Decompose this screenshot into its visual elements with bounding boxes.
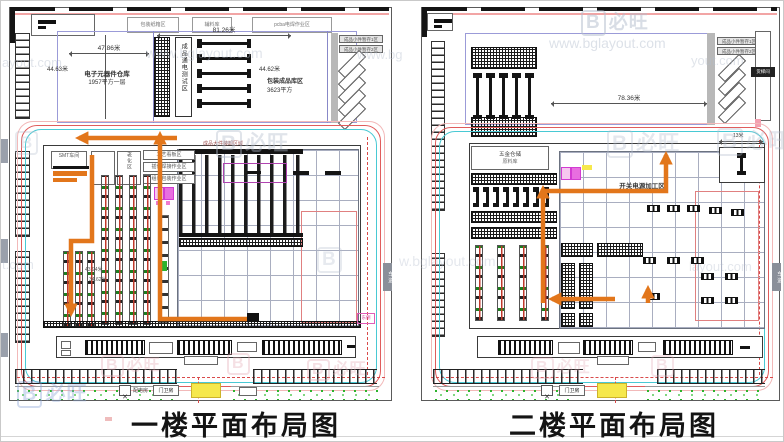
dimension-label: 78.36米 [597, 95, 661, 103]
floor1-plan: 包装纸箱区 辅料库 pcba电焊作业区 81.26米 47.86米 44.63米… [7, 5, 393, 403]
window-hatch [663, 340, 733, 355]
yellow-marker [582, 165, 592, 170]
buffer-rack-band [179, 238, 303, 247]
dimension-label: 81.26米 [192, 27, 256, 35]
pallet-rack [561, 243, 593, 257]
room-label: 老化区 [126, 152, 133, 170]
annex-room [61, 350, 71, 356]
parking-comb [657, 369, 765, 384]
workshop-red-zone [301, 211, 357, 323]
table-glyph [247, 171, 261, 174]
dimension-label: 47.86米 [77, 45, 141, 53]
annex-porch [597, 356, 629, 365]
workbench [647, 205, 660, 212]
lane-badge: 车道 [772, 263, 781, 291]
assembly-machine [197, 39, 251, 48]
metal-store-box: 五金仓储 原料库 [471, 146, 549, 170]
production-line-rail [75, 251, 83, 327]
dimension-line [719, 141, 763, 142]
production-line-rail [475, 245, 483, 321]
workbench [691, 257, 704, 264]
room-label: 五金仓储 [472, 150, 548, 158]
floor1-caption: 一楼平面布局图 [91, 404, 381, 442]
green-flow-marker [161, 261, 167, 271]
annex-room [237, 342, 257, 352]
lift-badge: 货梯间 [751, 67, 775, 77]
room-label: 包装成品库区 [267, 79, 303, 86]
pallet-rack [471, 227, 557, 239]
window-hatch [262, 340, 342, 355]
floor2-top-wall [423, 7, 777, 11]
hall-divider [327, 31, 328, 123]
press-machine [499, 73, 508, 119]
annex-porch [184, 356, 218, 365]
production-line-rail [115, 175, 123, 325]
orange-equipment-bar [53, 171, 87, 176]
production-line-rail [87, 251, 95, 327]
rack-column [579, 313, 593, 327]
main-gate [191, 383, 221, 398]
kanban-marker [154, 187, 164, 200]
press-machine [512, 73, 521, 119]
workbench [701, 297, 714, 304]
floor2-caption: 二楼平面布局图 [469, 404, 759, 442]
room-label: 成品通电测试区 [179, 43, 186, 92]
table-glyph [293, 171, 309, 175]
pallet-rack [597, 243, 643, 257]
pink-dot [166, 201, 170, 205]
gate-kiosk [239, 387, 257, 396]
dimension-line [157, 35, 291, 36]
rack-column [561, 263, 575, 309]
edge-badge [1, 139, 8, 163]
press-machine [473, 73, 482, 119]
table-glyph [740, 346, 750, 349]
pallet-rack [154, 37, 170, 117]
floor2-plan: 78.36米 成品小件暂存1区 成品小件暂存2区 货梯间 五金仓储 原料库 [419, 5, 781, 403]
window-hatch [498, 340, 553, 355]
production-line-rail [101, 175, 109, 325]
small-machine [533, 187, 539, 207]
dimension-label: 44.62米 [259, 67, 280, 74]
kanban-marker [561, 167, 571, 180]
stacked-label-box: 工艺看板区 [143, 150, 195, 160]
production-line-rail [143, 175, 151, 325]
assembly-machine [197, 69, 251, 78]
small-machine [473, 187, 479, 207]
workbench [731, 209, 744, 216]
edge-badge [1, 239, 8, 263]
room-label: 1957平方一层 [63, 80, 151, 87]
workbench [667, 257, 680, 264]
side-note-box: 东侧 [357, 313, 375, 324]
kanban-marker [571, 167, 581, 180]
crossed-box-icon [541, 385, 553, 396]
workbench [701, 273, 714, 280]
production-line-rail [129, 175, 137, 325]
window-hatch [85, 340, 145, 355]
workbench [643, 257, 656, 264]
production-line-rail [497, 245, 505, 321]
landscape-strip [433, 386, 577, 400]
assembly-machine [197, 99, 251, 108]
rack-column [579, 263, 593, 309]
corner-machine [737, 153, 746, 175]
annex-room [61, 341, 71, 349]
main-gate [597, 383, 627, 398]
pallet-rack [471, 47, 537, 69]
loading-dock-comb [15, 33, 30, 119]
press-machine [486, 73, 495, 119]
parking-comb [253, 369, 377, 384]
ramp-wall [707, 33, 715, 125]
workbench [647, 293, 660, 300]
area-label: 开关电源加工区 [597, 183, 687, 191]
production-line-rail [63, 251, 71, 327]
rack-column [561, 313, 575, 327]
workbench [667, 205, 680, 212]
small-machine [523, 187, 529, 207]
power-room-label: 配电房 [133, 388, 148, 394]
line-footer-wall [179, 233, 303, 237]
parking-comb [15, 369, 177, 384]
lane-badge: 车道 [383, 263, 392, 291]
room-label: 电子元器件仓库 [63, 71, 151, 79]
pink-dot [156, 201, 160, 205]
dimension-line [551, 103, 707, 104]
press-machine [525, 73, 534, 119]
title-block [427, 13, 453, 31]
annex-room [638, 342, 656, 352]
kanban-marker [164, 187, 174, 200]
window-hatch [177, 340, 232, 355]
pallet-rack [471, 211, 557, 223]
small-machine [483, 187, 489, 207]
annex-building [56, 336, 356, 358]
small-machine [503, 187, 509, 207]
assembly-machine [197, 54, 251, 63]
ramp-label-box: 成品小件暂存1区 [339, 35, 383, 43]
orange-equipment-bar [53, 178, 77, 182]
floor-plan-screenshot: 包装纸箱区 辅料库 pcba电焊作业区 81.26米 47.86米 44.63米… [0, 0, 784, 442]
landscape-strip [15, 386, 173, 400]
room-label: 3623平方 [267, 88, 292, 95]
annex-room [558, 342, 580, 354]
pallet-rack [471, 173, 557, 185]
small-machine [513, 187, 519, 207]
block-bottom-wall [43, 321, 361, 328]
small-machine [543, 187, 549, 207]
workbench [709, 207, 722, 214]
table-glyph [325, 171, 341, 175]
table-glyph [347, 345, 355, 348]
dimension-label: 34.62米 [89, 277, 107, 283]
road-centerline-vertical [367, 137, 368, 375]
crossed-box-icon [119, 385, 131, 396]
equipment-bar [53, 166, 89, 169]
production-line-rail [519, 245, 527, 321]
line-header-wall [179, 149, 303, 154]
guard-house-box: 门卫房 [153, 385, 179, 396]
landscape-strip [645, 386, 765, 400]
stacked-label-box: 插件焊接作业区 [143, 162, 195, 172]
dimension-label: 43.94米 [85, 267, 103, 273]
window-hatch [583, 340, 633, 355]
annex-building [477, 336, 763, 358]
annex-room [149, 342, 173, 354]
dimension-label: 13米 [733, 133, 744, 139]
workbench [725, 297, 738, 304]
parking-comb [433, 369, 583, 384]
edge-badge [1, 333, 8, 357]
small-machine [493, 187, 499, 207]
production-line-rail [541, 245, 549, 321]
guard-house-box: 门卫房 [559, 385, 585, 396]
assembly-machine [197, 84, 251, 93]
floor1-top-wall [11, 7, 389, 11]
floor2-wall-highlight [423, 13, 777, 15]
dock-area-label: 成品大件装卸区域 [203, 141, 243, 147]
room-label: 原料库 [472, 158, 548, 165]
workbench [687, 205, 700, 212]
workbench [725, 273, 738, 280]
dimension-line [69, 53, 149, 54]
